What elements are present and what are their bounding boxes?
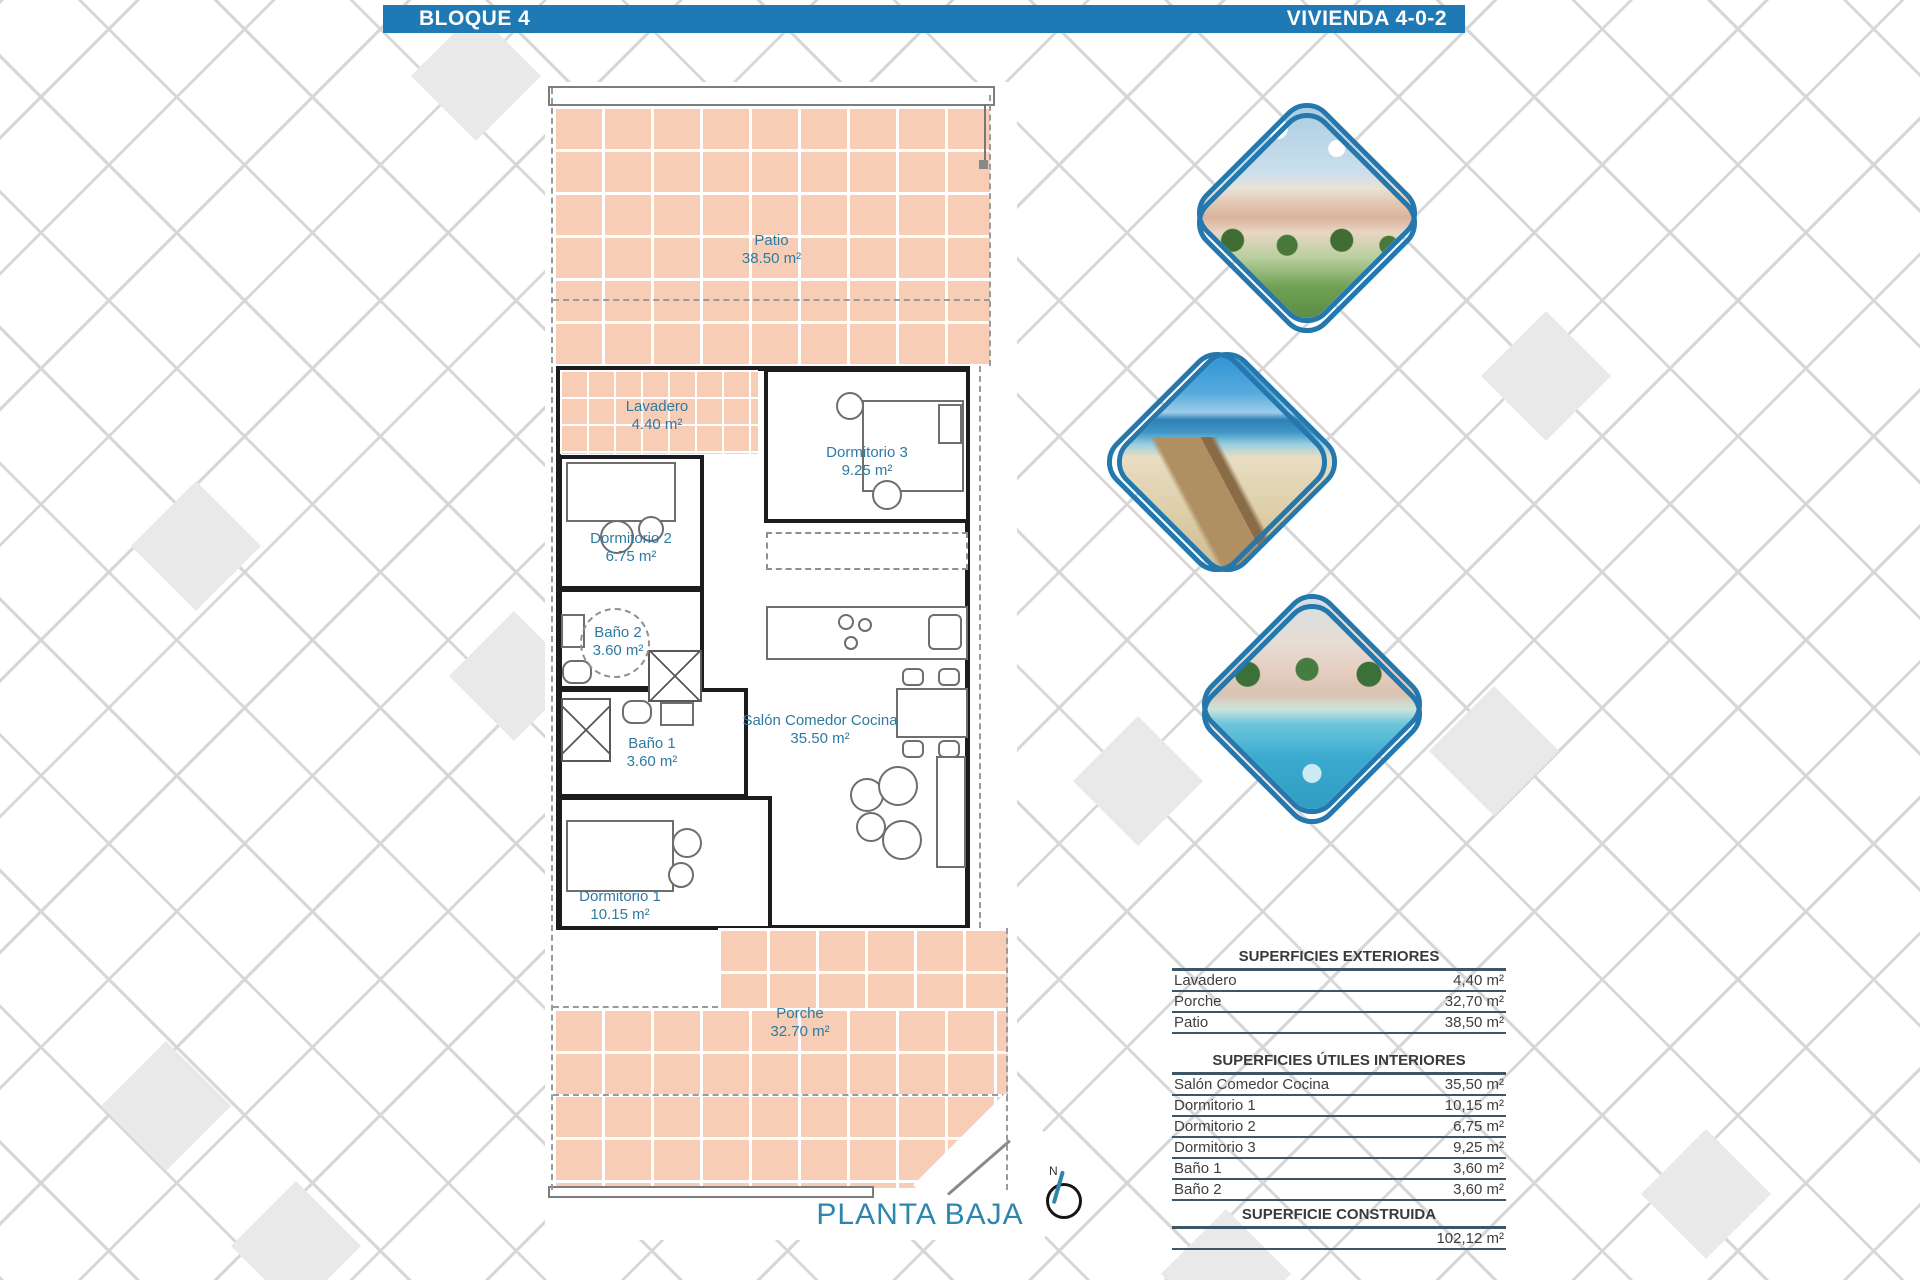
patio-boundary-dash	[553, 299, 990, 301]
apartments-photo	[1221, 127, 1393, 299]
table-row: Dormitorio 1 10,15 m²	[1172, 1096, 1506, 1117]
table-row: Porche 32,70 m²	[1172, 992, 1506, 1013]
room-label-salon: Salón Comedor Cocina 35.50 m²	[700, 712, 940, 748]
sink-bano-1	[660, 702, 694, 726]
table-row: Patio 38,50 m²	[1172, 1013, 1506, 1034]
plan-title: PLANTA BAJA	[790, 1198, 1050, 1232]
bedside-plant	[836, 392, 864, 420]
table-title: SUPERFICIES EXTERIORES	[1172, 948, 1506, 968]
kitchen-sink	[928, 614, 962, 650]
bedside-plant	[672, 828, 702, 858]
boundary-dash-patio-right	[989, 95, 991, 366]
room-label-porche: Porche 32.70 m²	[640, 1005, 960, 1041]
porche-tiles-upper	[718, 928, 1008, 1010]
room-label-dormitorio-2: Dormitorio 2 6.75 m²	[558, 530, 704, 566]
bed-dormitorio-2	[566, 462, 676, 522]
dining-chair	[938, 668, 960, 686]
room-label-lavadero: Lavadero 4.40 m²	[556, 398, 758, 434]
hob-burner	[844, 636, 858, 650]
table-row: Salón Comedor Cocina 35,50 m²	[1172, 1075, 1506, 1096]
hob-burner	[858, 618, 872, 632]
bed-dormitorio-1	[566, 820, 674, 892]
patio-vent-mark	[979, 160, 988, 169]
boundary-dash-right	[979, 366, 981, 928]
dining-chair	[902, 668, 924, 686]
sofa	[936, 756, 966, 868]
bedside-plant	[872, 480, 902, 510]
patio-top-wall	[548, 86, 995, 106]
plant	[882, 820, 922, 860]
porche-boundary-dash	[553, 1094, 1008, 1096]
table-row: Dormitorio 3 9,25 m²	[1172, 1138, 1506, 1159]
toilet-bano-1	[622, 700, 652, 724]
plant	[878, 766, 918, 806]
compass-north-label: N	[1049, 1164, 1058, 1178]
boundary-dash-porche-right	[1006, 928, 1008, 1190]
table-superficies-interiores: SUPERFICIES ÚTILES INTERIORES Salón Come…	[1172, 1052, 1506, 1201]
floor-plan-sheet: BLOQUE 4 VIVIENDA 4-0-2	[0, 0, 1920, 1280]
block-title: BLOQUE 4	[419, 7, 530, 31]
table-row: 102,12 m²	[1172, 1229, 1506, 1250]
porche-bottom-wall	[548, 1186, 874, 1198]
beach-photo	[1141, 376, 1313, 548]
room-label-dormitorio-3: Dormitorio 3 9.25 m²	[764, 444, 970, 480]
hob-burner	[838, 614, 854, 630]
table-row: Baño 2 3,60 m²	[1172, 1180, 1506, 1201]
patio-vent-line	[984, 104, 986, 162]
room-label-patio: Patio 38.50 m²	[553, 232, 990, 268]
room-label-dormitorio-1: Dormitorio 1 10.15 m²	[545, 888, 695, 924]
header-bar: BLOQUE 4 VIVIENDA 4-0-2	[383, 5, 1465, 33]
table-title: SUPERFICIES ÚTILES INTERIORES	[1172, 1052, 1506, 1072]
unit-title: VIVIENDA 4-0-2	[1287, 7, 1447, 31]
table-superficies-exteriores: SUPERFICIES EXTERIORES Lavadero 4,40 m² …	[1172, 948, 1506, 1034]
room-label-bano-2: Baño 2 3.60 m²	[558, 624, 678, 660]
kitchen-upper-cabinets	[766, 532, 968, 570]
bedside-plant	[668, 862, 694, 888]
table-row: Dormitorio 2 6,75 m²	[1172, 1117, 1506, 1138]
table-row: Baño 1 3,60 m²	[1172, 1159, 1506, 1180]
table-row: Lavadero 4,40 m²	[1172, 971, 1506, 992]
closet-dormitorio-3	[938, 404, 962, 444]
table-superficie-construida: SUPERFICIE CONSTRUIDA 102,12 m²	[1172, 1206, 1506, 1250]
pool-photo	[1226, 618, 1398, 790]
table-title: SUPERFICIE CONSTRUIDA	[1172, 1206, 1506, 1226]
